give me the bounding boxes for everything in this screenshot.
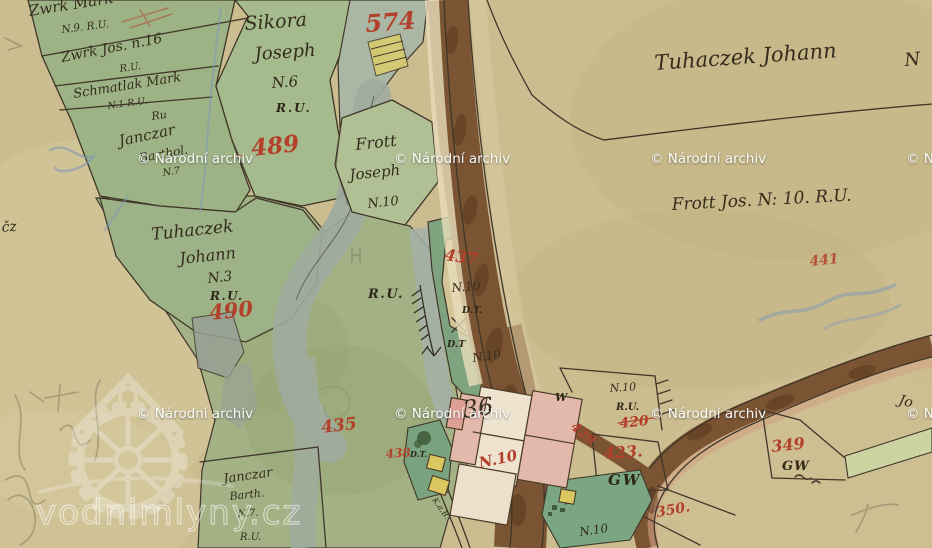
archive-watermark: © Národní archiv	[137, 151, 253, 167]
fragment-left-edge: čz	[1, 219, 18, 236]
parcel-label-janczar-s-ru: R.U.	[239, 532, 261, 543]
fragment-top-right: N	[903, 49, 923, 71]
red-number-423: 423.	[603, 441, 643, 463]
label-437-dt: D.T.	[461, 305, 482, 316]
archive-watermark: © Národní archiv	[650, 151, 766, 167]
label-dt-438: D.T.	[409, 449, 427, 459]
red-number-438: 438	[385, 445, 412, 461]
parcel-label-tuhaczek-w-no: N.3	[206, 268, 233, 287]
archive-watermark: © Národní archiv	[906, 406, 932, 422]
red-number-420: 420	[619, 413, 650, 432]
parcel-label-sikora-no: N.6	[270, 72, 299, 92]
archive-watermark: © Národní archiv	[137, 406, 253, 422]
red-number-349: 349	[770, 434, 805, 456]
parcel-label-janczar-n-ru: Ru	[150, 108, 168, 123]
label-w-mark: W	[555, 391, 569, 404]
label-437-dt2: D.T	[446, 339, 466, 350]
archive-watermark: © Národní archiv	[394, 406, 510, 422]
cadastral-map-scan: Zwrk Mark N.9. R.U. Zwrk Jos. n.16 R.U. …	[0, 0, 932, 548]
red-number-441: 441	[809, 251, 840, 270]
label-gw-east: GW	[782, 459, 810, 474]
label-ne-ru: R.U.	[615, 402, 639, 413]
archive-watermark: © Národní archiv	[906, 151, 932, 167]
parcel-label-sikora-ru: R.U.	[275, 101, 312, 115]
label-ru-mid: R.U.	[367, 287, 404, 302]
archive-watermark: © Národní archiv	[650, 406, 766, 422]
site-watermark-text: vodnimlyny.cz	[36, 493, 302, 533]
red-number-574: 574	[364, 6, 416, 38]
red-number-490: 490	[208, 295, 255, 324]
archive-watermark: © Národní archiv	[394, 151, 510, 167]
label-ne-n10: N.10	[608, 380, 636, 395]
label-437-n10: N.10	[450, 278, 481, 295]
label-gw-west: GW	[608, 471, 642, 489]
red-number-489: 489	[250, 130, 301, 162]
parcel-label-sikora: Sikora	[244, 9, 308, 35]
